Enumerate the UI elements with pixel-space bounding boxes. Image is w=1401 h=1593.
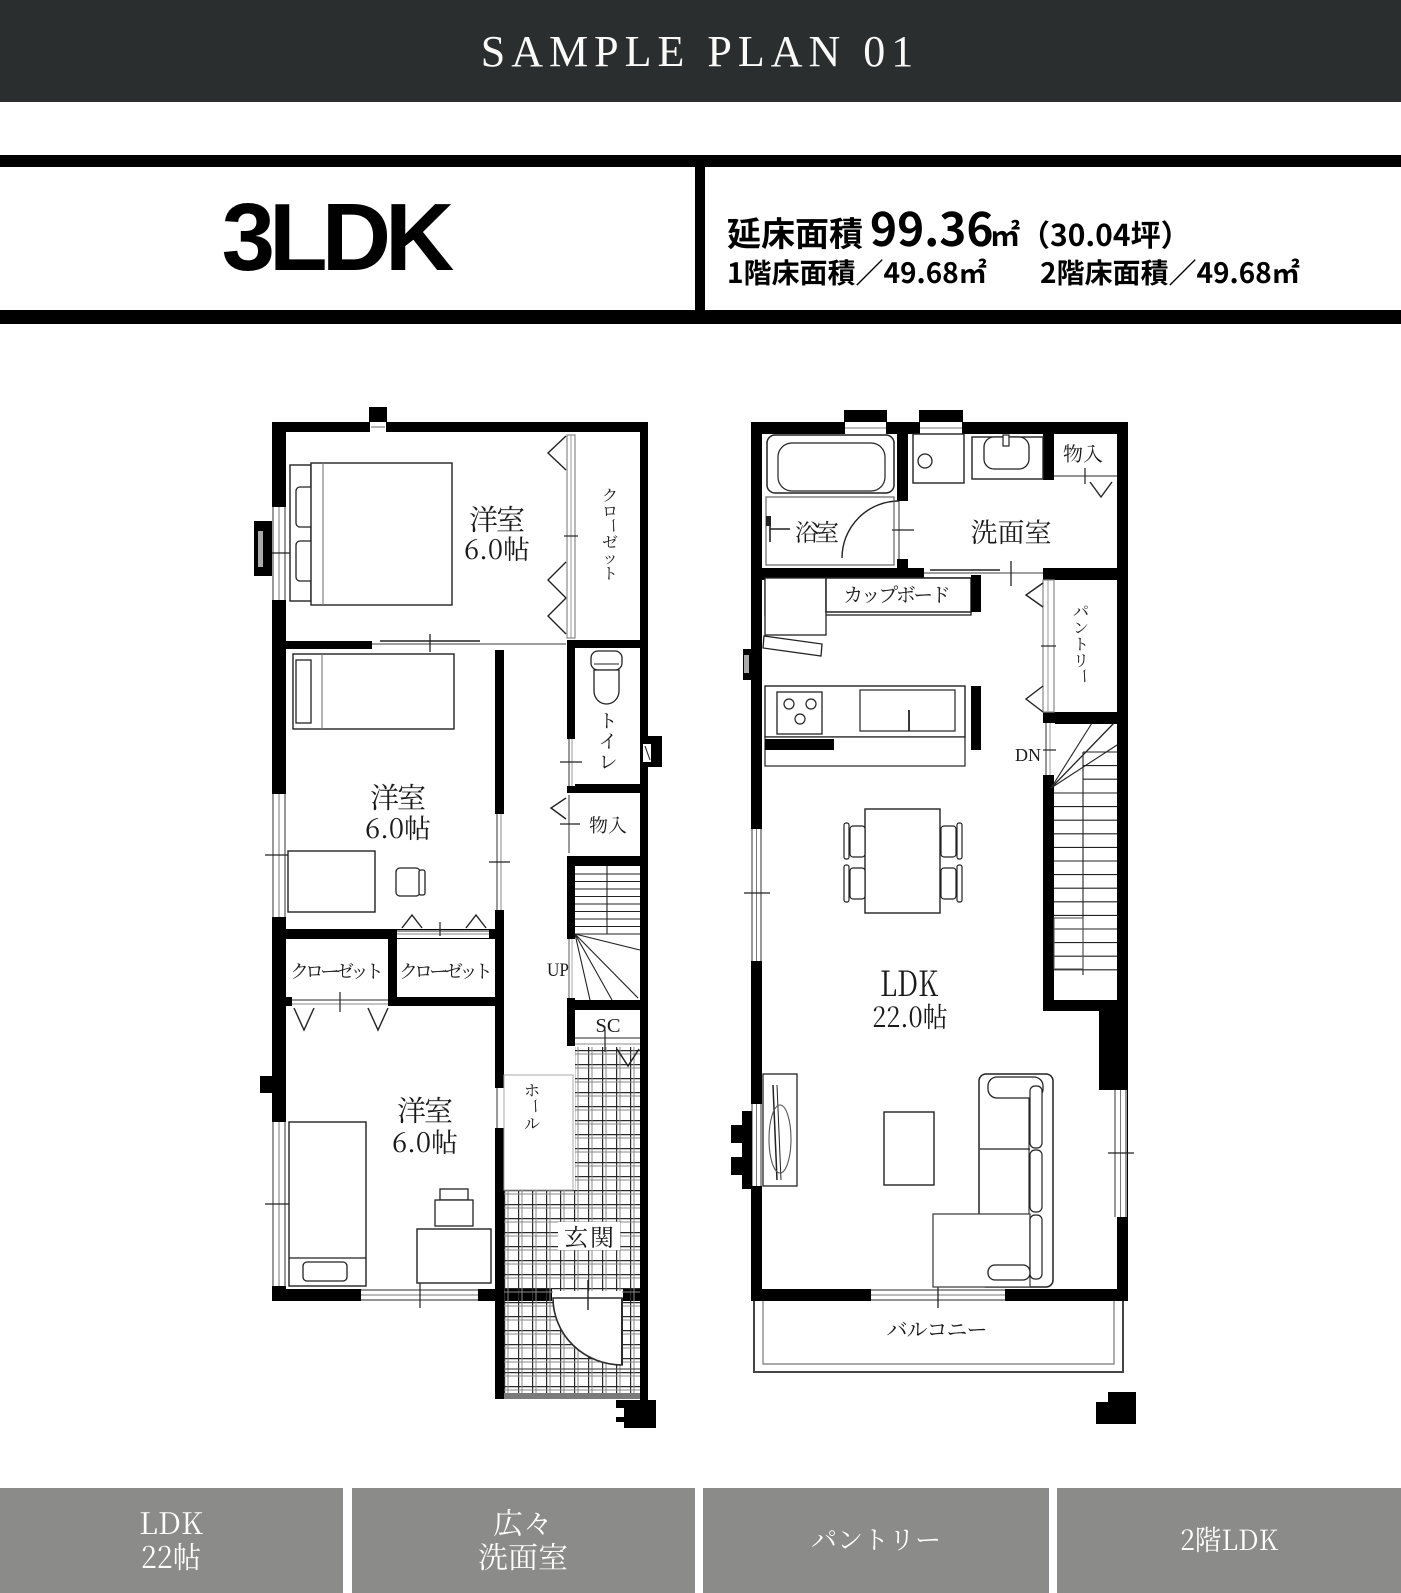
svg-text:DN: DN (1015, 745, 1041, 765)
svg-text:3LDK: 3LDK (222, 184, 454, 291)
svg-text:SC: SC (596, 1015, 621, 1037)
svg-text:SAMPLE PLAN 01: SAMPLE PLAN 01 (481, 27, 920, 76)
svg-text:UP: UP (547, 960, 569, 981)
